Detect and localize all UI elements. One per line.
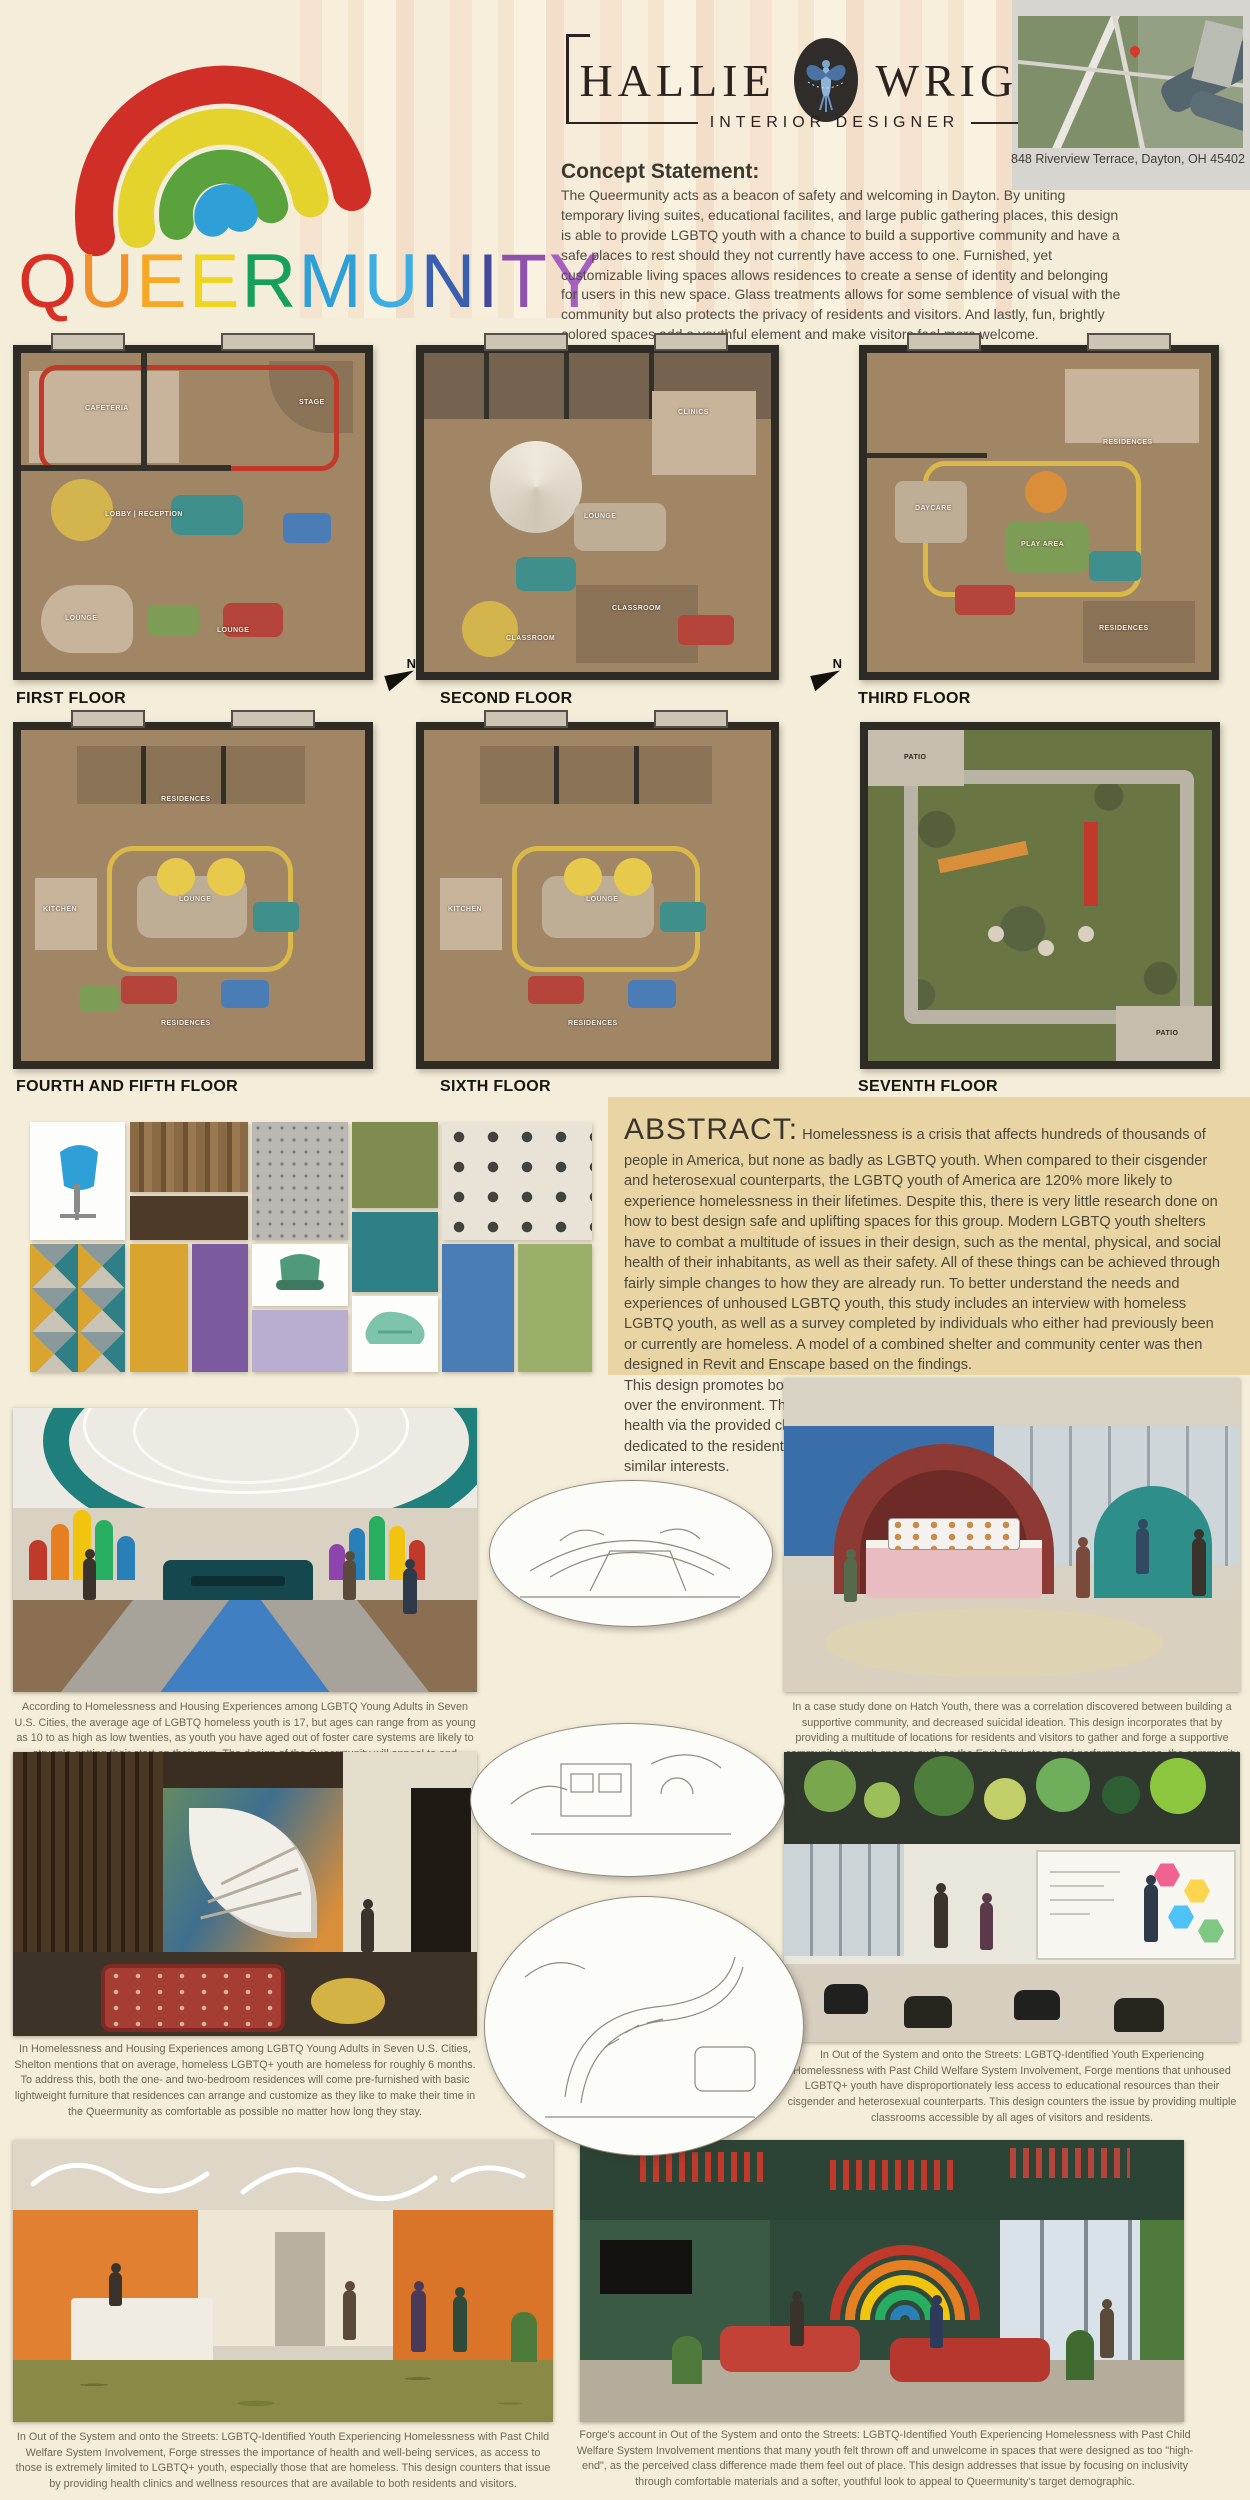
material-swatch-olive: [352, 1122, 438, 1208]
plan-wall: [634, 746, 639, 804]
material-card-armchair: [252, 1244, 348, 1306]
plan-furniture: [147, 605, 199, 635]
plan-wall: [554, 746, 559, 804]
material-swatch-mustard: [130, 1244, 188, 1372]
person-figure: [109, 2272, 122, 2306]
room-label: LOUNGE: [584, 513, 616, 520]
title-letter: R: [241, 239, 298, 324]
plan-room: [1083, 601, 1195, 663]
ceiling-circle: [1102, 1776, 1140, 1814]
chair: [904, 1996, 952, 2028]
render-stairwell-image: [13, 1752, 477, 2036]
hexagon-decor: [1168, 1904, 1194, 1930]
plan-room: [480, 746, 712, 804]
render-clinic-hall-image: [13, 2140, 553, 2422]
plan-balcony: [654, 333, 728, 351]
plan-room: [1065, 369, 1199, 443]
room-label: LOUNGE: [179, 896, 211, 903]
room-label: PATIO: [904, 754, 926, 761]
plan-furniture: [660, 902, 706, 932]
ceiling-circle: [804, 1760, 856, 1812]
green-pattern-floor: [13, 2360, 553, 2422]
material-card-sofa: [352, 1296, 438, 1372]
north-arrow: N: [386, 656, 416, 687]
person-figure: [1100, 2308, 1114, 2358]
plan-balcony: [71, 710, 145, 728]
plan-furniture: [628, 980, 676, 1008]
plan-balcony: [484, 333, 568, 351]
room-label: STAGE: [299, 399, 325, 406]
map-river: [1187, 88, 1243, 148]
chair: [824, 1984, 868, 2014]
plan-furniture: [253, 902, 299, 932]
ceiling-circle: [914, 1756, 974, 1816]
material-swatch-gray-dot: [252, 1122, 348, 1240]
person-figure: [930, 2304, 943, 2348]
loft-edge: [163, 1752, 343, 1788]
room-label: RESIDENCES: [1099, 625, 1149, 632]
room-label: RESIDENCES: [161, 1020, 211, 1027]
material-swatch-teal: [352, 1212, 438, 1292]
plant: [1066, 2330, 1094, 2380]
room-label: RESIDENCES: [1103, 439, 1153, 446]
title-letter: E: [136, 239, 189, 324]
material-swatch-walnut: [130, 1196, 248, 1240]
plan-furniture: [528, 976, 584, 1004]
plan-furniture: [955, 585, 1015, 615]
red-couch: [890, 2338, 1050, 2382]
rainbow-mural: [820, 2228, 990, 2323]
pastry-case: [888, 1518, 1020, 1550]
person-figure: [1136, 1528, 1149, 1574]
concept-body: The Queermunity acts as a beacon of safe…: [561, 186, 1127, 345]
room-label: LOUNGE: [217, 627, 249, 634]
title-letter: U: [79, 239, 136, 324]
plan-room: [895, 481, 967, 543]
person-figure: [934, 1892, 948, 1948]
subtitle-rule-left: [566, 122, 698, 124]
hexagon-decor: [1198, 1918, 1224, 1944]
floor-accent: [824, 1608, 1164, 1678]
page-title: QUEERMUNITY: [18, 238, 602, 325]
plan-wall: [867, 453, 987, 458]
material-swatch-blue: [442, 1244, 514, 1372]
plan-room: [35, 878, 97, 950]
material-swatch-lavender: [252, 1310, 348, 1372]
room-label: CLASSROOM: [506, 635, 555, 642]
floor-label-sixth: SIXTH FLOOR: [440, 1078, 551, 1096]
room-label: PATIO: [1156, 1030, 1178, 1037]
rainbow-stripe: [117, 1536, 135, 1580]
floor-plan-second: CLINICS LOUNGE CLASSROOM CLASSROOM: [416, 345, 779, 680]
plan-feature: [490, 441, 582, 533]
material-swatch-polka: [442, 1122, 592, 1240]
floor-label-first: FIRST FLOOR: [16, 690, 126, 708]
room-label: CLASSROOM: [612, 605, 661, 612]
plan-room: [574, 503, 666, 551]
plan-balcony: [231, 710, 315, 728]
room-label: PLAY AREA: [1021, 541, 1064, 548]
whiteboard: [1036, 1850, 1236, 1960]
desk-sign: [191, 1576, 285, 1586]
title-letter: M: [298, 239, 363, 324]
oriental-rug: [101, 1964, 285, 2032]
rainbow-wall-left: [29, 1504, 179, 1580]
material-swatch-purple: [192, 1244, 248, 1372]
plan-furniture: [678, 615, 734, 645]
floor-label-second: SECOND FLOOR: [440, 690, 573, 708]
person-figure: [790, 2300, 804, 2346]
plan-balcony: [654, 710, 728, 728]
material-card-chair: [30, 1122, 125, 1240]
floor-label-third: THIRD FLOOR: [858, 690, 971, 708]
person-figure: [453, 2296, 467, 2352]
person-figure: [343, 1560, 356, 1600]
plan-feature: [51, 479, 113, 541]
patio-table: [1038, 940, 1054, 956]
patio-table: [1078, 926, 1094, 942]
red-ceiling-slats: [830, 2160, 960, 2190]
sketch-vignette-stair: [484, 1896, 804, 2156]
person-figure: [411, 2290, 426, 2352]
room-label: RESIDENCES: [161, 796, 211, 803]
greenery: [1140, 2220, 1184, 2360]
material-swatch-sage: [518, 1244, 592, 1372]
title-letter: Q: [18, 239, 79, 324]
plan-feature: [564, 858, 602, 896]
rainbow-stripe: [51, 1524, 69, 1580]
person-figure: [1144, 1884, 1158, 1942]
title-letter: I: [477, 239, 500, 324]
location-map-image: [1018, 16, 1243, 148]
material-swatch-wood: [130, 1122, 248, 1192]
room-label: RESIDENCES: [568, 1020, 618, 1027]
tv-screen: [600, 2240, 692, 2294]
room-label: CLINICS: [678, 409, 709, 416]
room-label: KITCHEN: [448, 906, 482, 913]
plan-room: [652, 391, 756, 475]
caption-classroom: In Out of the System and onto the Street…: [784, 2048, 1240, 2126]
sketch-vignette-cafe: [470, 1723, 785, 1877]
plan-furniture: [221, 980, 269, 1008]
ceiling-circle: [864, 1782, 900, 1818]
floor-plan-fourth-fifth: RESIDENCES KITCHEN LOUNGE RESIDENCES: [13, 722, 373, 1069]
address-text: 848 Riverview Terrace, Dayton, OH 45402: [1008, 152, 1248, 166]
abstract-para1: Homelessness is a crisis that affects hu…: [624, 1127, 1221, 1373]
floor-plan-third: RESIDENCES DAYCARE PLAY AREA RESIDENCES: [859, 345, 1219, 680]
north-arrow-icon: [384, 667, 417, 691]
plan-wall: [141, 746, 146, 804]
chair: [1014, 1990, 1060, 2020]
brand-first-name: HALLIE: [579, 54, 775, 107]
title-letter: E: [189, 239, 242, 324]
rainbow-stripe: [369, 1516, 385, 1580]
room-label: LOUNGE: [586, 896, 618, 903]
render-lobby-image: [13, 1408, 477, 1692]
caption-clinic-hall: In Out of the System and onto the Street…: [13, 2430, 553, 2493]
person-figure: [361, 1908, 374, 1952]
north-arrow-icon: [810, 667, 843, 691]
plan-feature: [207, 858, 245, 896]
patio-table: [988, 926, 1004, 942]
plan-wall: [564, 353, 569, 419]
hexagon-decor: [1154, 1862, 1180, 1888]
material-swatch-triangles: [30, 1244, 125, 1372]
render-lounge-image: [580, 2140, 1184, 2422]
ceiling-circle: [984, 1778, 1026, 1820]
red-ceiling-slats: [640, 2152, 770, 2182]
north-arrow: N: [812, 656, 842, 687]
ceiling-circle: [1036, 1758, 1090, 1812]
poster-board: QUEERMUNITY HALLIE WRIGHT INTERIOR DESIG…: [0, 0, 1250, 2500]
person-figure: [403, 1568, 417, 1614]
brand-frame-left-stub: [566, 34, 590, 37]
render-classroom-image: [784, 1752, 1240, 2042]
plan-feature: [614, 858, 652, 896]
caption-residence: In Homelessness and Housing Experiences …: [13, 2042, 477, 2120]
person-figure: [980, 1902, 993, 1950]
title-letter: N: [421, 239, 478, 324]
ceiling-circle: [1150, 1758, 1206, 1814]
chair: [1114, 1998, 1164, 2032]
plan-wall: [21, 465, 231, 471]
plan-balcony: [221, 333, 315, 351]
title-letter: T: [501, 239, 549, 324]
plan-furniture: [283, 513, 331, 543]
plan-wall: [141, 353, 147, 471]
plan-balcony: [907, 333, 981, 351]
floor-label-seventh: SEVENTH FLOOR: [858, 1078, 998, 1096]
person-figure: [83, 1558, 96, 1600]
plan-feature: [462, 601, 518, 657]
person-figure: [1076, 1546, 1090, 1598]
person-figure: [343, 2290, 356, 2340]
hexagon-decor: [1184, 1878, 1210, 1904]
patio-feature: [1084, 822, 1098, 906]
brand-subtitle: INTERIOR DESIGNER: [710, 114, 959, 132]
rainbow-stripe: [29, 1540, 47, 1580]
plan-furniture: [79, 986, 119, 1012]
stair-step: [221, 1846, 298, 1886]
room-label: DAYCARE: [915, 505, 952, 512]
plant: [672, 2336, 702, 2384]
floor-plan-sixth: KITCHEN LOUNGE RESIDENCES: [416, 722, 779, 1069]
plan-furniture: [121, 976, 177, 1004]
person-figure: [1192, 1538, 1206, 1596]
plan-feature: [157, 858, 195, 896]
plant: [511, 2312, 537, 2362]
concept-heading: Concept Statement:: [561, 160, 759, 184]
room-label: LOUNGE: [65, 615, 97, 622]
floor-label-fourth-fifth: FOURTH AND FIFTH FLOOR: [16, 1078, 238, 1096]
abstract-section: ABSTRACT: Homelessness is a crisis that …: [608, 1097, 1250, 1375]
plan-wall: [484, 353, 489, 419]
plan-feature: [1025, 471, 1067, 513]
plan-balcony: [1087, 333, 1171, 351]
flower-garland: [784, 1378, 1240, 1426]
room-label: LOBBY | RECEPTION: [105, 511, 183, 518]
dark-opening: [411, 1788, 471, 1952]
room-label: KITCHEN: [43, 906, 77, 913]
squiggle-lights: [13, 2140, 553, 2210]
red-ceiling-slats: [1010, 2148, 1130, 2178]
rainbow-stripe: [95, 1520, 113, 1580]
window-wall: [784, 1844, 904, 1956]
title-letter: U: [364, 239, 421, 324]
hummingbird-icon: [794, 38, 858, 122]
sketch-vignette-lobby: [489, 1480, 773, 1627]
floor-plan-first: CAFETERIA STAGE LOBBY | RECEPTION LOUNGE…: [13, 345, 373, 680]
plan-furniture: [1089, 551, 1141, 581]
person-figure: [844, 1558, 857, 1602]
plan-balcony: [484, 710, 568, 728]
abstract-paragraph: ABSTRACT: Homelessness is a crisis that …: [624, 1109, 1230, 1376]
patio-walkway: [904, 770, 1194, 1024]
plan-wall: [221, 746, 226, 804]
plan-circulation-path: [39, 365, 339, 471]
room-label: CAFETERIA: [85, 405, 129, 412]
yellow-rug: [311, 1978, 385, 2024]
plan-room: [440, 878, 502, 950]
plan-balcony: [51, 333, 125, 351]
abstract-heading: ABSTRACT:: [624, 1113, 798, 1146]
render-cafe-image: [784, 1378, 1240, 1692]
floor-plan-seventh: PATIO PATIO: [860, 722, 1220, 1069]
caption-lounge: Forge's account in Out of the System and…: [575, 2428, 1195, 2491]
doorway: [275, 2232, 325, 2346]
plan-furniture: [516, 557, 576, 591]
